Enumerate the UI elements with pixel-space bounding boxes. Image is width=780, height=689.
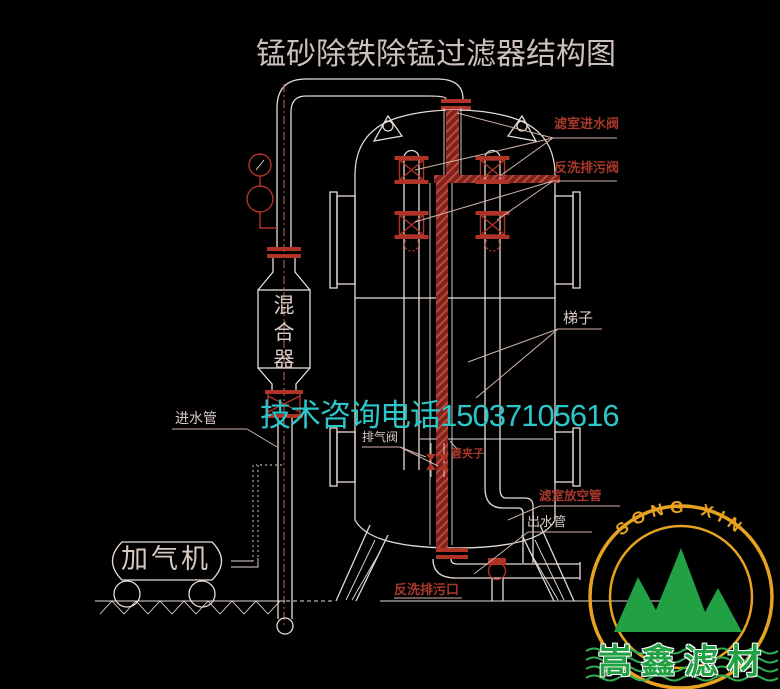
label-pipe-clamp: 管夹子 (451, 449, 484, 460)
lifting-lug-left (374, 116, 402, 141)
label-mixer: 混合器 (272, 294, 293, 375)
line-art: SONG XIN (0, 0, 780, 689)
logo-company-name: 嵩鑫滤材 (598, 645, 770, 679)
phone-watermark: 技术咨询电话15037105616 (260, 400, 619, 431)
label-backwash-drain-outlet: 反洗排污口 (394, 583, 459, 596)
label-aerator: 加气机 (121, 546, 211, 573)
logo-mountains-icon (614, 548, 742, 632)
aerator-feed-pipe (231, 465, 282, 567)
label-inlet-pipe: 进水管 (175, 411, 217, 425)
label-outlet-pipe: 出水管 (527, 515, 566, 528)
pressure-gauge (247, 154, 277, 228)
label-filter-inlet-valve: 滤室进水阀 (554, 117, 619, 130)
chamber-vent-pipe-run (485, 488, 533, 563)
top-feed-pipe (277, 79, 471, 112)
backwash-valve-left (395, 211, 429, 239)
label-backwash-drain-valve: 反洗排污阀 (554, 161, 619, 174)
diagram-title: 锰砂除铁除锰过滤器结构图 (256, 40, 616, 70)
ground-lines (95, 601, 665, 614)
lifting-lug-right (508, 116, 536, 141)
label-ladder: 梯子 (563, 311, 593, 326)
inlet-valve-left (395, 156, 429, 184)
logo-arc-text: SONG XIN (612, 498, 750, 540)
label-vent-valve: 排气阀 (362, 431, 398, 443)
diagram-canvas: SONG XIN 锰砂除铁除锰过滤器结构图 技术咨询电话15037105616 … (0, 0, 780, 689)
inlet-valve-right (476, 156, 510, 184)
label-chamber-vent-pipe: 滤室放空管 (539, 490, 602, 503)
